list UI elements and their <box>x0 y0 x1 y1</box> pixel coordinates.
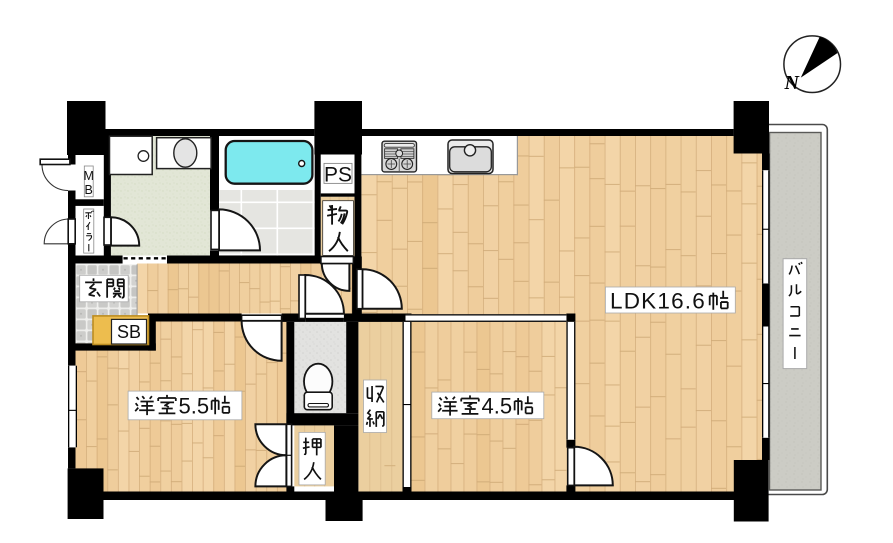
svg-text:B: B <box>85 183 93 197</box>
svg-text:5.5: 5.5 <box>179 394 210 419</box>
svg-text:4.5: 4.5 <box>482 394 513 419</box>
svg-text:N: N <box>784 72 801 94</box>
svg-text:SB: SB <box>117 322 141 342</box>
svg-text:PS: PS <box>324 163 352 186</box>
svg-text:M: M <box>83 169 93 183</box>
svg-text:LDK16.6: LDK16.6 <box>610 289 706 314</box>
